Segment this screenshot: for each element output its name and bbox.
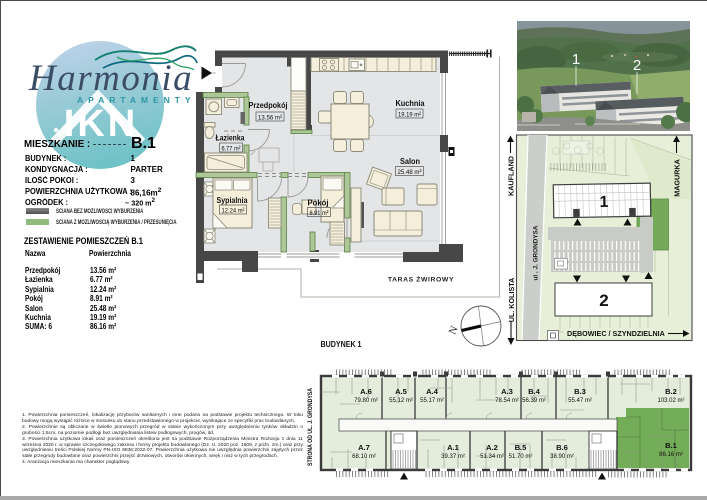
- svg-text:B.3: B.3: [574, 387, 586, 396]
- svg-text:A.2: A.2: [486, 443, 498, 452]
- svg-text:KAUFLAND: KAUFLAND: [507, 156, 516, 196]
- svg-text:55.12 m²: 55.12 m²: [389, 398, 413, 404]
- svg-text:19.19 m²: 19.19 m²: [398, 112, 422, 119]
- svg-text:68.10 m²: 68.10 m²: [352, 454, 376, 460]
- svg-text:N: N: [447, 324, 461, 336]
- svg-text:B.4: B.4: [528, 387, 541, 396]
- svg-text:86.16 m²: 86.16 m²: [659, 452, 683, 458]
- svg-text:STRONA OD UL. J. GRONDYSA: STRONA OD UL. J. GRONDYSA: [307, 388, 314, 466]
- svg-text:103.02 m²: 103.02 m²: [657, 398, 684, 404]
- svg-text:51.70 m²: 51.70 m²: [509, 454, 533, 460]
- svg-text:51.34 m²: 51.34 m²: [480, 454, 504, 460]
- svg-text:APARTAMENTY: APARTAMENTY: [77, 95, 196, 105]
- svg-text:A.5: A.5: [395, 387, 408, 396]
- svg-text:BUDYNEK 1: BUDYNEK 1: [321, 339, 362, 349]
- svg-text:DĘBOWIEC / SZYNDZIELNIA: DĘBOWIEC / SZYNDZIELNIA: [567, 329, 665, 338]
- svg-text:56.39 m²: 56.39 m²: [522, 398, 546, 404]
- svg-text:ul . J. GRONDYSA: ul . J. GRONDYSA: [533, 225, 540, 280]
- svg-text:78.54 m²: 78.54 m²: [495, 398, 519, 404]
- svg-text:25.48 m²: 25.48 m²: [398, 169, 423, 176]
- svg-text:B.6: B.6: [556, 443, 568, 452]
- svg-text:B.5: B.5: [515, 443, 528, 452]
- svg-text:UL. KOLISTA: UL. KOLISTA: [507, 278, 516, 323]
- svg-text:B.2: B.2: [665, 387, 677, 396]
- svg-text:2: 2: [599, 291, 608, 310]
- svg-text:1: 1: [599, 194, 608, 211]
- svg-text:Harmonia: Harmonia: [28, 58, 193, 99]
- svg-text:2: 2: [633, 57, 641, 74]
- svg-text:6.77 m²: 6.77 m²: [222, 146, 242, 153]
- svg-text:Salon: Salon: [400, 157, 420, 166]
- svg-text:A.4: A.4: [426, 387, 439, 396]
- svg-text:13.56 m²: 13.56 m²: [258, 115, 283, 122]
- svg-text:8.91 m²: 8.91 m²: [310, 210, 330, 217]
- svg-text:39.37 m²: 39.37 m²: [441, 454, 465, 460]
- svg-text:A.7: A.7: [358, 443, 370, 452]
- svg-text:Kuchnia: Kuchnia: [396, 99, 426, 108]
- svg-text:Pokój: Pokój: [308, 199, 329, 208]
- svg-text:Przedpokój: Przedpokój: [249, 101, 288, 110]
- svg-text:A.3: A.3: [501, 387, 513, 396]
- svg-text:79.80 m²: 79.80 m²: [354, 398, 378, 404]
- svg-text:Łazienka: Łazienka: [216, 134, 245, 143]
- svg-text:Sypialnia: Sypialnia: [217, 196, 248, 205]
- svg-text:12.24 m²: 12.24 m²: [222, 208, 246, 215]
- svg-text:A.6: A.6: [360, 387, 372, 396]
- svg-text:MAGURKA: MAGURKA: [673, 159, 682, 197]
- svg-text:38.90 m²: 38.90 m²: [550, 454, 574, 460]
- svg-text:TARAS ŻWIROWY: TARAS ŻWIROWY: [388, 276, 454, 284]
- svg-text:1: 1: [572, 51, 580, 68]
- svg-text:55.47 m²: 55.47 m²: [568, 398, 592, 404]
- svg-text:A.1: A.1: [447, 443, 460, 452]
- svg-text:B.1: B.1: [665, 441, 678, 450]
- svg-text:55.17 m²: 55.17 m²: [420, 398, 444, 404]
